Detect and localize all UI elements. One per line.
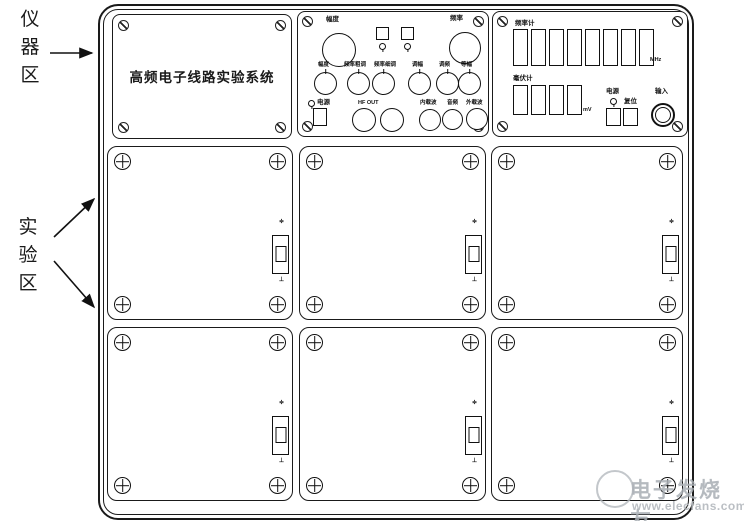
experiment-panel-4: ≑ ⊥ <box>107 327 293 501</box>
screw-icon <box>269 153 286 170</box>
screw-icon <box>114 153 131 170</box>
switch-handle[interactable] <box>275 427 286 443</box>
frequency-knob[interactable] <box>449 32 481 64</box>
switch-handle[interactable] <box>665 246 676 262</box>
reset-button[interactable] <box>623 108 638 126</box>
screw-icon <box>498 477 515 494</box>
screw-icon <box>302 16 313 27</box>
experiment-panel-2: ≑ ⊥ <box>299 146 486 320</box>
mode-switch-button-1[interactable] <box>376 27 389 40</box>
module-power-switch[interactable] <box>662 416 679 455</box>
digit-cell <box>567 29 582 66</box>
mid-knob-4[interactable] <box>408 72 431 95</box>
counter-power-button[interactable] <box>606 108 621 126</box>
switch-top-mark: ≑ <box>274 219 289 225</box>
digit-cell <box>513 29 528 66</box>
hf-out-jack-2[interactable] <box>380 108 404 132</box>
experiment-area-char: 实 <box>15 214 41 242</box>
switch-handle[interactable] <box>468 427 479 443</box>
counter-power-led <box>610 98 617 105</box>
experiment-panel-1: ≑ ⊥ <box>107 146 293 320</box>
screw-icon <box>672 121 683 132</box>
mid-knob-5[interactable] <box>436 72 459 95</box>
power-led <box>308 100 315 107</box>
arrow-to-experiment-row1 <box>54 199 94 237</box>
digit-cell <box>531 85 546 115</box>
mid-knob-1[interactable] <box>314 72 337 95</box>
experiment-panel-5: ≑ ⊥ <box>299 327 486 501</box>
carrier-jack-2[interactable] <box>442 109 463 130</box>
switch-handle[interactable] <box>468 246 479 262</box>
screw-icon <box>306 296 323 313</box>
millivolt-display <box>513 85 582 115</box>
screw-icon <box>473 16 484 27</box>
watermark: 电子发烧友 www.elecfans.com <box>604 462 744 518</box>
digit-cell <box>549 85 564 115</box>
module-power-switch[interactable] <box>272 416 289 455</box>
mid-knob-label-2: 频率粗调 <box>344 63 366 69</box>
screw-icon <box>659 334 676 351</box>
source-power-label: 电源 <box>317 100 330 107</box>
signal-source-panel: 幅度 频率 幅度 频率粗调 频率细调 调幅 调频 等幅 电源 HF OUT 内载… <box>297 11 489 137</box>
screw-icon <box>306 477 323 494</box>
input-label: 输入 <box>655 89 668 96</box>
mid-knob-label-1: 幅度 <box>318 63 329 69</box>
hf-out-label: HF OUT <box>358 101 378 107</box>
screw-icon <box>114 296 131 313</box>
screw-icon <box>498 153 515 170</box>
input-jack[interactable] <box>651 103 675 127</box>
instrument-area-char: 区 <box>17 62 43 90</box>
mid-knob-2[interactable] <box>347 72 370 95</box>
screw-icon <box>118 122 129 133</box>
screw-icon <box>275 122 286 133</box>
experiment-area-label: 实 验 区 <box>15 214 41 298</box>
screw-icon <box>498 296 515 313</box>
mode-switch-button-2[interactable] <box>401 27 414 40</box>
module-power-switch[interactable] <box>465 416 482 455</box>
screw-icon <box>269 477 286 494</box>
mode-led-1 <box>379 43 386 50</box>
switch-top-mark: ≑ <box>664 400 679 406</box>
instrument-area-label: 仪 器 区 <box>17 6 43 90</box>
screw-icon <box>462 296 479 313</box>
screw-icon <box>306 334 323 351</box>
module-power-switch[interactable] <box>272 235 289 274</box>
watermark-url: www.elecfans.com <box>632 499 744 513</box>
mode-led-2 <box>404 43 411 50</box>
mid-knob-label-3: 频率细调 <box>374 63 396 69</box>
digit-cell <box>531 29 546 66</box>
digit-cell <box>513 85 528 115</box>
screw-icon <box>269 296 286 313</box>
mid-knob-label-5: 调频 <box>439 63 450 69</box>
experiment-area-char: 验 <box>15 242 41 270</box>
screw-icon <box>114 334 131 351</box>
carrier-jack-1[interactable] <box>419 109 441 131</box>
screw-icon <box>269 334 286 351</box>
screw-icon <box>498 334 515 351</box>
screw-icon <box>302 121 313 132</box>
source-power-button[interactable] <box>313 108 327 126</box>
big-knob-left-label: 幅度 <box>326 17 339 24</box>
mid-knob-label-4: 调幅 <box>412 63 423 69</box>
module-power-switch[interactable] <box>662 235 679 274</box>
screw-icon <box>497 16 508 27</box>
experiment-panel-3: ≑ ⊥ <box>491 146 683 320</box>
watermark-brand: 电子发烧友 <box>630 474 744 521</box>
digit-cell <box>567 85 582 115</box>
switch-top-mark: ≑ <box>467 219 482 225</box>
switch-handle[interactable] <box>665 427 676 443</box>
switch-handle[interactable] <box>275 246 286 262</box>
module-power-switch[interactable] <box>465 235 482 274</box>
mid-knob-label-6: 等幅 <box>461 63 472 69</box>
digit-cell <box>621 29 636 66</box>
digit-cell <box>549 29 564 66</box>
switch-top-mark: ≑ <box>467 400 482 406</box>
carrier-jack-3[interactable] <box>466 108 488 130</box>
digit-cell <box>585 29 600 66</box>
reset-label: 复位 <box>624 99 637 106</box>
screw-icon <box>672 16 683 27</box>
screw-icon <box>462 477 479 494</box>
jack-label-3: 外载波 <box>466 101 483 107</box>
counter-power-label: 电源 <box>606 89 619 96</box>
instrument-area-char: 器 <box>17 34 43 62</box>
input-jack-inner <box>655 107 671 123</box>
screw-icon <box>659 296 676 313</box>
freq-unit: MHz <box>650 58 661 64</box>
mid-knob-6[interactable] <box>458 72 481 95</box>
screw-icon <box>306 153 323 170</box>
frequency-display <box>513 29 654 66</box>
screw-icon <box>114 477 131 494</box>
mv-display-label: 毫伏计 <box>513 76 533 83</box>
switch-bottom-mark: ⊥ <box>467 458 482 464</box>
switch-top-mark: ≑ <box>664 219 679 225</box>
screw-icon <box>462 153 479 170</box>
screw-icon <box>497 121 508 132</box>
screw-icon <box>462 334 479 351</box>
watermark-logo-icon <box>596 470 634 508</box>
screw-icon <box>275 20 286 31</box>
switch-bottom-mark: ⊥ <box>274 277 289 283</box>
screw-icon <box>118 20 129 31</box>
digit-cell <box>603 29 618 66</box>
screw-icon <box>659 153 676 170</box>
freq-display-label: 频率计 <box>515 21 535 28</box>
hf-out-jack-1[interactable] <box>352 108 376 132</box>
counter-panel: 频率计 MHz 毫伏计 mV 电源 复位 输入 <box>492 11 688 137</box>
arrow-to-experiment-row2 <box>54 261 94 307</box>
switch-bottom-mark: ⊥ <box>467 277 482 283</box>
switch-top-mark: ≑ <box>274 400 289 406</box>
instrument-area-char: 仪 <box>17 6 43 34</box>
title-panel: 高频电子线路实验系统 <box>112 14 292 139</box>
figure-instrument-layout: 仪 器 区 实 验 区 高频电子线路实验系统 幅度 <box>0 0 744 521</box>
system-title: 高频电子线路实验系统 <box>113 66 291 86</box>
big-knob-right-label: 频率 <box>450 16 463 23</box>
switch-bottom-mark: ⊥ <box>664 277 679 283</box>
mid-knob-3[interactable] <box>372 72 395 95</box>
jack-label-2: 音频 <box>447 101 458 107</box>
jack-label-1: 内载波 <box>420 101 437 107</box>
experiment-area-char: 区 <box>15 270 41 298</box>
switch-bottom-mark: ⊥ <box>274 458 289 464</box>
mv-unit: mV <box>583 108 592 114</box>
